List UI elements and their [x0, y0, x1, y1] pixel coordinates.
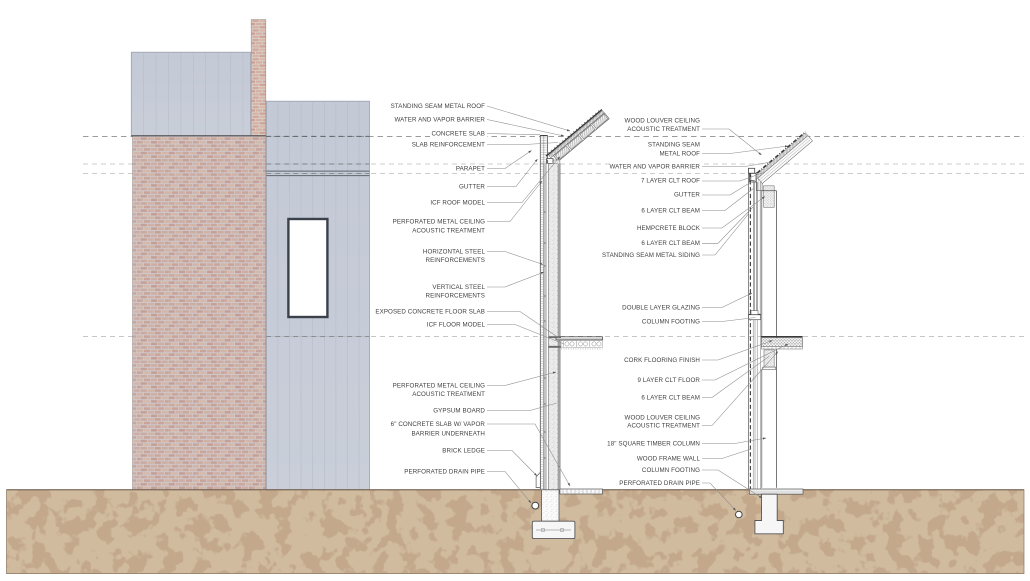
svg-text:GYPSUM BOARD: GYPSUM BOARD — [433, 408, 485, 415]
svg-text:HORIZONTAL STEEL: HORIZONTAL STEEL — [423, 249, 486, 256]
svg-text:ICF ROOF MODEL: ICF ROOF MODEL — [430, 200, 485, 207]
svg-text:GUTTER: GUTTER — [674, 192, 700, 199]
svg-text:PERFORATED METAL CEILING: PERFORATED METAL CEILING — [393, 383, 485, 390]
svg-text:WATER AND VAPOR BARRIER: WATER AND VAPOR BARRIER — [394, 117, 485, 124]
svg-text:METAL ROOF: METAL ROOF — [659, 151, 700, 158]
svg-text:REINFORCEMENTS: REINFORCEMENTS — [426, 293, 486, 300]
svg-text:COLUMN FOOTING: COLUMN FOOTING — [642, 319, 700, 326]
svg-text:18" SQUARE TIMBER COLUMN: 18" SQUARE TIMBER COLUMN — [607, 441, 700, 448]
svg-text:STANDING SEAM METAL SIDING: STANDING SEAM METAL SIDING — [602, 252, 700, 259]
svg-text:DOUBLE LAYER GLAZING: DOUBLE LAYER GLAZING — [622, 305, 700, 312]
svg-text:ACOUSTIC TREATMENT: ACOUSTIC TREATMENT — [412, 228, 485, 235]
svg-text:GUTTER: GUTTER — [459, 184, 485, 191]
svg-text:6" CONCRETE SLAB W/ VAPOR: 6" CONCRETE SLAB W/ VAPOR — [391, 421, 486, 428]
svg-text:6 LAYER CLT BEAM: 6 LAYER CLT BEAM — [641, 240, 700, 247]
svg-text:CONCRETE SLAB: CONCRETE SLAB — [431, 131, 485, 138]
svg-text:7 LAYER CLT ROOF: 7 LAYER CLT ROOF — [641, 178, 700, 185]
svg-text:PERFORATED DRAIN PIPE: PERFORATED DRAIN PIPE — [619, 480, 700, 487]
svg-text:PERFORATED METAL CEILING: PERFORATED METAL CEILING — [393, 219, 485, 226]
svg-text:ACOUSTIC TREATMENT: ACOUSTIC TREATMENT — [627, 126, 700, 133]
svg-text:ACOUSTIC TREATMENT: ACOUSTIC TREATMENT — [627, 423, 700, 430]
svg-text:COLUMN FOOTING: COLUMN FOOTING — [642, 467, 700, 474]
svg-text:REINFORCEMENTS: REINFORCEMENTS — [426, 257, 486, 264]
svg-text:WOOD LOUVER CEILING: WOOD LOUVER CEILING — [625, 118, 701, 125]
svg-text:BRICK LEDGE: BRICK LEDGE — [442, 448, 485, 455]
svg-text:ACOUSTIC TREATMENT: ACOUSTIC TREATMENT — [412, 391, 485, 398]
svg-text:WATER AND VAPOR BARRIER: WATER AND VAPOR BARRIER — [609, 164, 700, 171]
svg-text:VERTICAL STEEL: VERTICAL STEEL — [432, 284, 485, 291]
svg-text:CORK FLOORING FINISH: CORK FLOORING FINISH — [624, 357, 700, 364]
svg-text:SLAB REINFORCEMENT: SLAB REINFORCEMENT — [412, 142, 485, 149]
svg-text:6 LAYER CLT BEAM: 6 LAYER CLT BEAM — [641, 395, 700, 402]
svg-text:PARAPET: PARAPET — [456, 166, 485, 173]
svg-text:STANDING SEAM METAL ROOF: STANDING SEAM METAL ROOF — [391, 103, 486, 110]
svg-text:EXPOSED CONCRETE FLOOR SLAB: EXPOSED CONCRETE FLOOR SLAB — [375, 309, 485, 316]
svg-text:BARRIER UNDERNEATH: BARRIER UNDERNEATH — [411, 431, 485, 438]
svg-text:PERFORATED DRAIN PIPE: PERFORATED DRAIN PIPE — [404, 469, 485, 476]
svg-text:WOOD FRAME WALL: WOOD FRAME WALL — [637, 456, 701, 463]
svg-text:ICF FLOOR MODEL: ICF FLOOR MODEL — [427, 322, 486, 329]
svg-text:9 LAYER CLT FLOOR: 9 LAYER CLT FLOOR — [637, 377, 700, 384]
svg-text:WOOD LOUVER CEILING: WOOD LOUVER CEILING — [625, 415, 701, 422]
svg-text:HEMPCRETE BLOCK: HEMPCRETE BLOCK — [637, 225, 701, 232]
svg-text:STANDING SEAM: STANDING SEAM — [648, 142, 700, 149]
svg-text:6 LAYER CLT BEAM: 6 LAYER CLT BEAM — [641, 208, 700, 215]
